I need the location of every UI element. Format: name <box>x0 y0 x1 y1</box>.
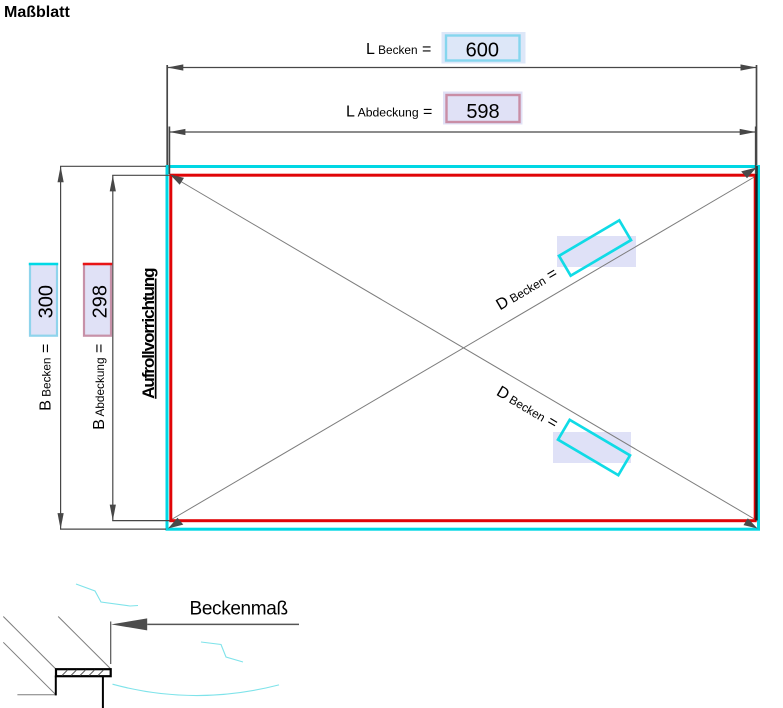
svg-text:L Becken =: L Becken = <box>366 41 431 58</box>
svg-text:B Becken =: B Becken = <box>38 344 55 411</box>
svg-text:B Abdeckung =: B Abdeckung = <box>91 344 108 430</box>
svg-text:598: 598 <box>466 101 499 123</box>
svg-text:Maßblatt: Maßblatt <box>4 4 70 21</box>
svg-text:600: 600 <box>466 39 499 61</box>
svg-text:Aufrollvorrichtung: Aufrollvorrichtung <box>139 268 158 399</box>
svg-text:298: 298 <box>89 285 111 318</box>
svg-text:300: 300 <box>35 285 57 318</box>
svg-text:L Abdeckung =: L Abdeckung = <box>346 103 432 120</box>
svg-text:Beckenmaß: Beckenmaß <box>190 599 288 620</box>
